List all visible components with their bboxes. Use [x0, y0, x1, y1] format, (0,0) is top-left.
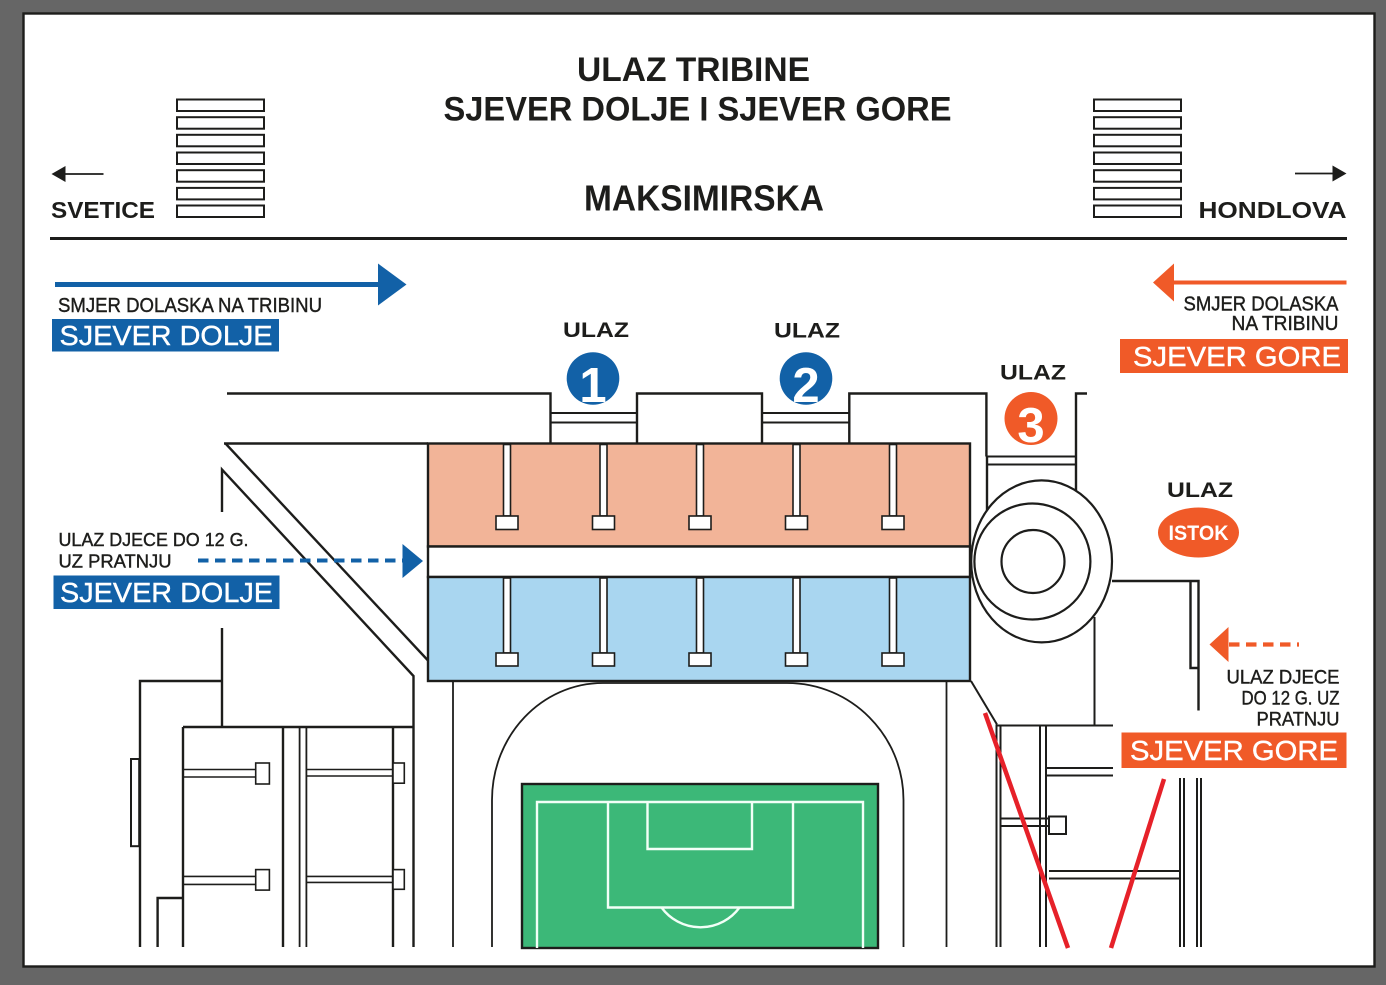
svg-text:2: 2 — [792, 359, 819, 413]
svg-text:ULAZ DJECE DO 12 G.: ULAZ DJECE DO 12 G. — [59, 530, 249, 550]
svg-text:ULAZ DJECE: ULAZ DJECE — [1227, 668, 1340, 689]
svg-text:ULAZ TRIBINE: ULAZ TRIBINE — [577, 51, 810, 89]
svg-text:NA TRIBINU: NA TRIBINU — [1232, 313, 1339, 335]
svg-text:DO 12 G. UZ: DO 12 G. UZ — [1242, 689, 1340, 710]
svg-text:SVETICE: SVETICE — [51, 197, 155, 223]
svg-text:3: 3 — [1017, 399, 1044, 453]
svg-text:MAKSIMIRSKA: MAKSIMIRSKA — [584, 178, 824, 219]
svg-text:SMJER DOLASKA NA TRIBINU: SMJER DOLASKA NA TRIBINU — [58, 295, 322, 317]
svg-text:ULAZ: ULAZ — [1000, 362, 1066, 385]
svg-text:SJEVER GORE: SJEVER GORE — [1130, 735, 1338, 766]
svg-text:ISTOK: ISTOK — [1169, 522, 1229, 545]
svg-text:HONDLOVA: HONDLOVA — [1199, 197, 1347, 223]
svg-text:SJEVER GORE: SJEVER GORE — [1133, 341, 1341, 372]
svg-text:SJEVER DOLJE: SJEVER DOLJE — [60, 320, 273, 351]
svg-text:ULAZ: ULAZ — [774, 320, 840, 343]
svg-text:SJEVER DOLJE: SJEVER DOLJE — [60, 577, 273, 608]
svg-text:ULAZ: ULAZ — [563, 319, 629, 342]
svg-text:1: 1 — [579, 359, 606, 413]
svg-text:SJEVER DOLJE I SJEVER GORE: SJEVER DOLJE I SJEVER GORE — [444, 91, 952, 129]
svg-text:ULAZ: ULAZ — [1167, 479, 1233, 502]
svg-text:PRATNJU: PRATNJU — [1257, 710, 1340, 731]
svg-text:UZ PRATNJU: UZ PRATNJU — [59, 552, 172, 572]
